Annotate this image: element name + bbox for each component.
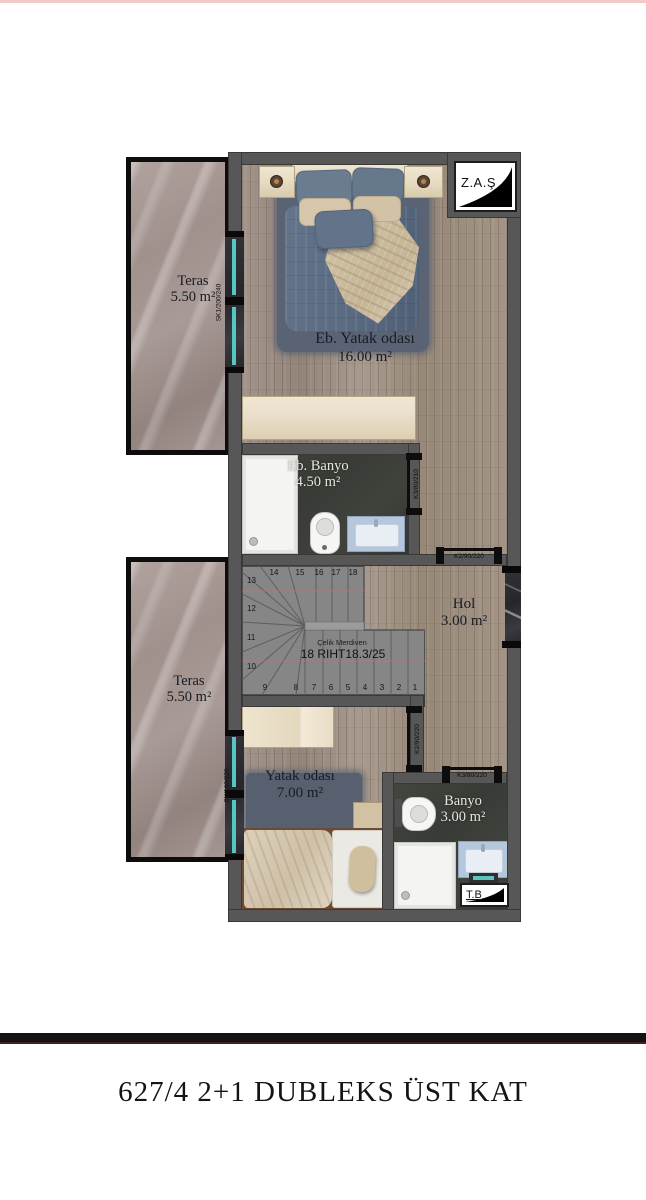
shower-drain bbox=[249, 537, 258, 546]
terrace-lower-area: 5.50 m² bbox=[167, 689, 212, 705]
toilet-seat bbox=[316, 518, 334, 536]
step-14: 14 bbox=[270, 568, 279, 577]
outer-wall-bottom bbox=[228, 909, 521, 922]
zas-logo-graphic: Z.A.Ş bbox=[456, 163, 515, 210]
footer-divider bbox=[0, 1033, 646, 1044]
terrace-upper-name: Teras bbox=[177, 273, 208, 289]
door-bath-label: K3/80/220 bbox=[446, 772, 498, 779]
toilet-base-dot bbox=[322, 545, 327, 550]
door-master-bath-label: K3/80/210 bbox=[413, 454, 423, 514]
floor-plan-page: Teras 5.50 m² Teras 5.50 m² Eb. Yatak od… bbox=[0, 0, 646, 1200]
door-hall-label: K2/90/220 bbox=[441, 553, 497, 560]
tb-logo: T.B bbox=[460, 883, 509, 907]
master-bedroom-label: Eb. Yatak odası 16.00 m² bbox=[275, 330, 455, 366]
wall-stairs-bottom bbox=[242, 695, 425, 707]
master-bath-label: Eb. Banyo 4.50 m² bbox=[243, 458, 393, 490]
hall-name: Hol bbox=[453, 596, 476, 612]
nightstand-right bbox=[404, 166, 443, 198]
step-5: 5 bbox=[346, 683, 351, 692]
bedroom-label: Yatak odası 7.00 m² bbox=[225, 768, 375, 802]
wall-masterbath-top bbox=[242, 443, 420, 455]
bedroom-area: 7.00 m² bbox=[277, 785, 323, 801]
terrace-lower-label: Teras 5.50 m² bbox=[139, 673, 239, 705]
bedroom-bed-pillow bbox=[348, 845, 376, 892]
bath-shower-drain bbox=[401, 891, 410, 900]
door-bedroom-label: K2/90/220 bbox=[414, 709, 424, 769]
step-7: 7 bbox=[312, 683, 317, 692]
step-13: 13 bbox=[247, 576, 256, 585]
bath-vanity-top bbox=[473, 876, 494, 880]
master-bath-sink bbox=[347, 516, 405, 552]
window-upper-label: SK1/200/240 bbox=[216, 263, 227, 343]
master-bedroom-area: 16.00 m² bbox=[338, 349, 392, 365]
pillow-blue-front bbox=[314, 209, 374, 250]
bath-toilet-tank bbox=[395, 799, 402, 827]
step-9: 9 bbox=[263, 683, 268, 692]
step-16: 16 bbox=[315, 568, 324, 577]
zas-logo: Z.A.Ş bbox=[454, 161, 517, 212]
nightstand-right-lamp bbox=[417, 175, 430, 188]
step-2: 2 bbox=[397, 683, 402, 692]
staircase: Çelik Merdiven 18 RIHT18.3/25 9 8 7 6 5 … bbox=[242, 566, 425, 695]
terrace-lower bbox=[126, 557, 230, 862]
stairs-spec-label: 18 RIHT18.3/25 bbox=[301, 647, 386, 661]
step-3: 3 bbox=[380, 683, 385, 692]
wall-bedroom-bath bbox=[382, 772, 394, 910]
hall-area: 3.00 m² bbox=[441, 613, 487, 629]
step-8: 8 bbox=[294, 683, 299, 692]
bath-label: Banyo 3.00 m² bbox=[413, 793, 513, 825]
bath-sink-basin bbox=[465, 849, 503, 873]
nightstand-left bbox=[259, 166, 295, 198]
master-bath-sink-faucet bbox=[374, 519, 378, 527]
bath-name: Banyo bbox=[444, 793, 482, 809]
bedroom-bed-duvet bbox=[244, 830, 332, 908]
step-10: 10 bbox=[247, 662, 256, 671]
bath-shower bbox=[394, 842, 456, 909]
terrace-upper bbox=[126, 157, 230, 455]
hall-label: Hol 3.00 m² bbox=[414, 596, 514, 630]
master-bath-area: 4.50 m² bbox=[296, 474, 341, 490]
terrace-lower-name: Teras bbox=[173, 673, 204, 689]
window-upper-glass-bottom bbox=[232, 307, 236, 365]
window-lower-label: SK/160/220 bbox=[224, 746, 235, 826]
nightstand-left-lamp bbox=[270, 175, 283, 188]
master-wardrobe bbox=[242, 396, 416, 440]
master-bath-sink-basin bbox=[355, 524, 399, 547]
step-17: 17 bbox=[332, 568, 341, 577]
step-4: 4 bbox=[363, 683, 368, 692]
bath-sink-faucet bbox=[481, 844, 485, 852]
top-accent-line bbox=[0, 0, 646, 3]
tb-logo-text: T.B bbox=[466, 889, 482, 901]
terrace-upper-area: 5.50 m² bbox=[171, 289, 216, 305]
step-18: 18 bbox=[349, 568, 358, 577]
bedroom-closet bbox=[242, 701, 334, 748]
bath-area: 3.00 m² bbox=[441, 809, 486, 825]
step-11: 11 bbox=[247, 633, 256, 642]
step-1: 1 bbox=[413, 683, 418, 692]
master-bedroom-name: Eb. Yatak odası bbox=[315, 330, 415, 347]
zas-logo-text: Z.A.Ş bbox=[461, 175, 496, 190]
bedroom-name: Yatak odası bbox=[265, 768, 335, 784]
page-title: 627/4 2+1 DUBLEKS ÜST KAT bbox=[0, 1076, 646, 1109]
step-12: 12 bbox=[247, 604, 256, 613]
terrace-upper-label: Teras 5.50 m² bbox=[143, 273, 243, 305]
master-bath-name: Eb. Banyo bbox=[287, 458, 348, 474]
stairs-material-label: Çelik Merdiven bbox=[317, 638, 367, 647]
step-15: 15 bbox=[296, 568, 305, 577]
master-bath-toilet bbox=[310, 512, 340, 554]
step-6: 6 bbox=[329, 683, 334, 692]
tb-logo-graphic: T.B bbox=[462, 885, 507, 905]
